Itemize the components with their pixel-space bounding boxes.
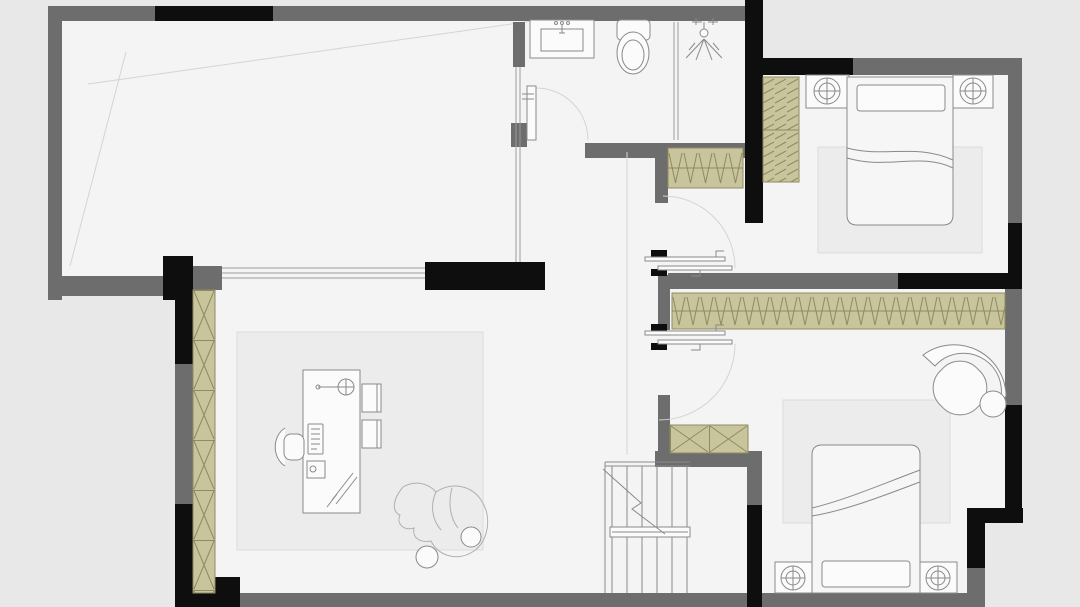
wall-segment xyxy=(655,143,668,203)
wardrobe-hanging-rail-icon xyxy=(668,148,743,188)
exterior-patch-bottom-left xyxy=(0,296,175,607)
keyboard-icon xyxy=(308,424,323,454)
floor-plan xyxy=(0,0,1080,607)
double-bed-icon xyxy=(847,77,953,225)
wall-segment xyxy=(747,505,762,607)
wall-segment xyxy=(1005,289,1022,405)
wall-segment xyxy=(668,273,898,289)
toilet-icon xyxy=(617,20,650,74)
wall-segment xyxy=(967,508,985,568)
wall-segment xyxy=(747,451,762,505)
wall-segment xyxy=(898,273,1008,289)
wardrobe-shelf-icon xyxy=(763,77,799,182)
nightstand-lamp-icon xyxy=(953,75,993,108)
pillow-icon xyxy=(822,561,910,587)
wall-segment xyxy=(511,123,527,147)
wall-segment xyxy=(1008,58,1022,223)
wall-segment xyxy=(757,593,967,607)
wall-segment xyxy=(175,290,193,364)
guest-chair-icon xyxy=(362,384,381,412)
wall-segment xyxy=(48,6,62,300)
exterior-patch-bottom-right xyxy=(985,523,1080,607)
wall-segment xyxy=(853,58,1008,75)
office-room xyxy=(237,332,488,568)
guest-chair-icon xyxy=(362,420,381,448)
floor-plan-canvas xyxy=(0,0,1080,607)
nightstand-lamp-icon xyxy=(806,75,849,108)
wardrobe-hanging-rail-icon xyxy=(672,293,1005,329)
ottoman-icon xyxy=(980,391,1006,417)
wall-segment xyxy=(1008,223,1022,289)
bedroom-top-right xyxy=(806,75,993,253)
wall-segment xyxy=(745,0,763,223)
wall-segment xyxy=(513,22,525,67)
sink-vanity-icon xyxy=(530,20,594,58)
wall-segment xyxy=(240,593,757,607)
ball-icon xyxy=(416,546,438,568)
wall-segment xyxy=(763,58,853,75)
storage-cabinet-x-icon xyxy=(670,425,748,453)
double-bed-icon xyxy=(812,445,920,593)
storage-cabinet-x-icon xyxy=(193,290,215,593)
wall-segment xyxy=(48,6,760,21)
nightstand-lamp-icon xyxy=(775,562,812,593)
desk-icon xyxy=(303,370,360,513)
exterior-patch-top-right xyxy=(763,0,1080,58)
wall-segment xyxy=(155,6,273,21)
wall-segment xyxy=(193,266,222,290)
nightstand-lamp-icon xyxy=(920,562,957,593)
wall-segment xyxy=(1005,405,1022,523)
wall-segment xyxy=(175,364,193,504)
pillow-icon xyxy=(857,85,945,111)
wall-segment xyxy=(967,568,985,607)
wall-segment xyxy=(425,262,545,290)
